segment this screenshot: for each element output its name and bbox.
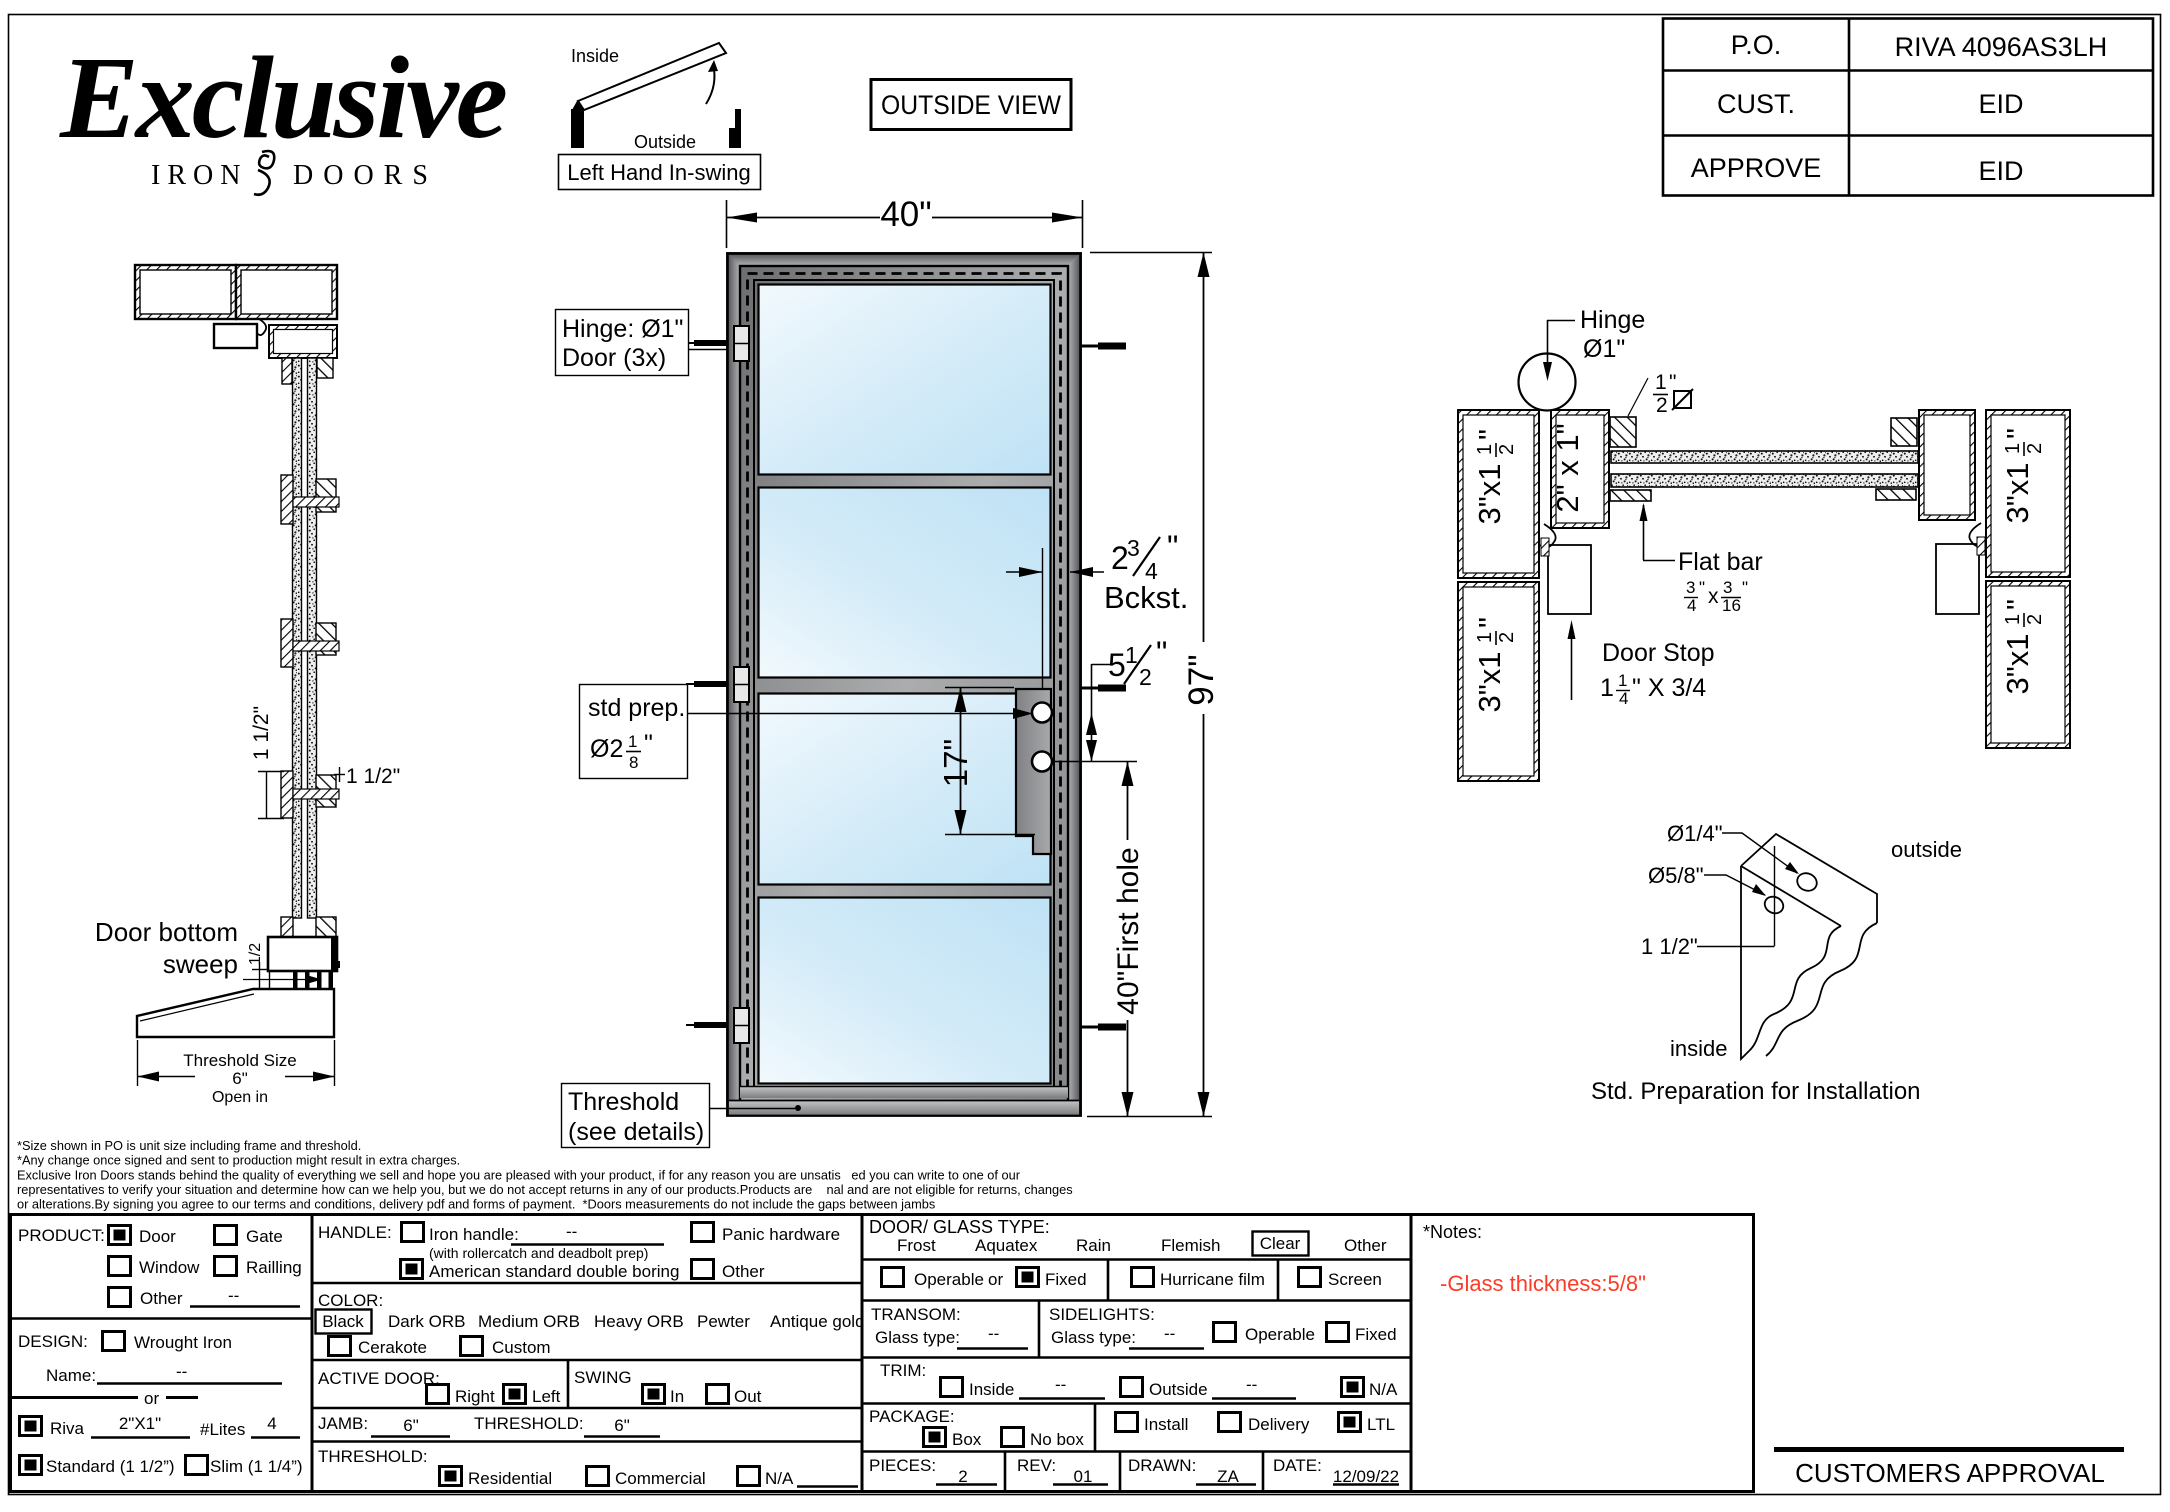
- svg-text:THRESHOLD:: THRESHOLD:: [318, 1447, 428, 1466]
- svg-text:": ": [1472, 429, 1507, 440]
- svg-text:Open in: Open in: [212, 1089, 268, 1106]
- svg-text:1: 1: [2002, 443, 2024, 454]
- svg-text:2: 2: [2024, 614, 2046, 625]
- svg-text:APPROVE: APPROVE: [1691, 153, 1822, 183]
- svg-text:Outside: Outside: [1149, 1380, 1208, 1399]
- svg-text:CUSTOMERS APPROVAL: CUSTOMERS APPROVAL: [1795, 1458, 2105, 1488]
- svg-text:or alterations.By signing you: or alterations.By signing you agree to o…: [17, 1197, 935, 1212]
- svg-text:" X 3/4: " X 3/4: [1632, 674, 1706, 702]
- svg-text:Heavy ORB: Heavy ORB: [594, 1312, 684, 1331]
- svg-text:3"x1: 3"x1: [1472, 464, 1507, 525]
- svg-text:SIDELIGHTS:: SIDELIGHTS:: [1049, 1305, 1155, 1324]
- svg-text:Inside: Inside: [571, 46, 619, 66]
- svg-text:3: 3: [1686, 578, 1695, 597]
- svg-text:Std. Preparation for Installat: Std. Preparation for Installation: [1591, 1078, 1921, 1105]
- svg-text:Exclusive: Exclusive: [59, 32, 506, 163]
- svg-text:American standard double borin: American standard double boring: [429, 1262, 679, 1281]
- svg-text:Left Hand In-swing: Left Hand In-swing: [567, 160, 750, 185]
- svg-text:1: 1: [628, 732, 637, 751]
- svg-text:": ": [1167, 529, 1178, 565]
- svg-text:Residential: Residential: [468, 1469, 552, 1488]
- svg-text:1 1/2": 1 1/2": [346, 765, 400, 788]
- svg-text:PRODUCT:: PRODUCT:: [18, 1226, 105, 1245]
- svg-text:--: --: [566, 1222, 577, 1241]
- svg-text:2" x 1": 2" x 1": [1550, 423, 1585, 512]
- svg-text:Antique gold: Antique gold: [770, 1312, 865, 1331]
- svg-text:TRIM:: TRIM:: [880, 1361, 926, 1380]
- svg-text:3"x1: 3"x1: [2000, 634, 2035, 695]
- svg-text:": ": [1699, 578, 1705, 597]
- svg-text:1: 1: [1474, 632, 1496, 643]
- svg-text:Wrought Iron: Wrought Iron: [134, 1333, 232, 1352]
- svg-text:Fixed: Fixed: [1355, 1325, 1397, 1344]
- svg-text:3: 3: [1127, 535, 1140, 561]
- svg-text:In: In: [670, 1387, 684, 1406]
- svg-text:DRAWN:: DRAWN:: [1128, 1456, 1196, 1475]
- svg-text:": ": [2000, 428, 2035, 439]
- svg-text:No box: No box: [1030, 1430, 1084, 1449]
- svg-text:2: 2: [2024, 443, 2046, 454]
- svg-text:Glass type:: Glass type:: [875, 1328, 960, 1347]
- svg-text:2: 2: [1139, 664, 1152, 690]
- svg-text:*Size shown in PO is unit size: *Size shown in PO is unit size including…: [17, 1138, 361, 1153]
- svg-text:Screen: Screen: [1328, 1270, 1382, 1289]
- svg-text:Iron handle:: Iron handle:: [429, 1225, 519, 1244]
- svg-text:Clear: Clear: [1260, 1234, 1301, 1253]
- svg-text:Bckst.: Bckst.: [1104, 580, 1188, 615]
- svg-text:Right: Right: [455, 1387, 495, 1406]
- svg-text:1: 1: [2002, 614, 2024, 625]
- svg-text:Threshold: Threshold: [568, 1088, 679, 1116]
- svg-text:Fixed: Fixed: [1045, 1270, 1087, 1289]
- svg-text:3: 3: [1723, 578, 1732, 597]
- svg-text:N/A: N/A: [765, 1469, 794, 1488]
- svg-text:DOORS: DOORS: [293, 160, 438, 191]
- svg-text:6": 6": [232, 1069, 248, 1088]
- svg-text:Slim (1 1/4”): Slim (1 1/4”): [210, 1457, 303, 1476]
- svg-text:2: 2: [1656, 394, 1668, 417]
- svg-text:x: x: [1708, 585, 1719, 608]
- svg-text:Flemish: Flemish: [1161, 1236, 1221, 1255]
- svg-text:EID: EID: [1978, 156, 2023, 186]
- svg-text:": ": [2000, 599, 2035, 610]
- svg-text:01: 01: [1074, 1467, 1093, 1486]
- svg-text:Operable: Operable: [914, 1270, 984, 1289]
- svg-text:Hurricane film: Hurricane film: [1160, 1270, 1265, 1289]
- svg-text:COLOR:: COLOR:: [318, 1291, 383, 1310]
- svg-text:Delivery: Delivery: [1248, 1415, 1310, 1434]
- svg-text:IRON: IRON: [151, 160, 247, 191]
- svg-text:Threshold Size: Threshold Size: [183, 1051, 296, 1070]
- svg-text:Box: Box: [952, 1430, 982, 1449]
- svg-text:TRANSOM:: TRANSOM:: [871, 1305, 961, 1324]
- svg-text:Panic hardware: Panic hardware: [722, 1225, 840, 1244]
- svg-text:--: --: [1055, 1375, 1066, 1394]
- svg-text:(with rollercatch and deadbolt: (with rollercatch and deadbolt prep): [429, 1245, 648, 1261]
- svg-text:Exclusive Iron Doors stands be: Exclusive Iron Doors stands behind the q…: [17, 1168, 1021, 1183]
- svg-text:CUST.: CUST.: [1717, 89, 1795, 119]
- svg-text:-Glass thickness:5/8": -Glass thickness:5/8": [1440, 1271, 1646, 1296]
- svg-text:Ø5/8": Ø5/8": [1648, 863, 1704, 888]
- svg-text:HANDLE:: HANDLE:: [318, 1223, 392, 1242]
- svg-text:Medium ORB: Medium ORB: [478, 1312, 580, 1331]
- svg-text:Cerakote: Cerakote: [358, 1338, 427, 1357]
- svg-text:ACTIVE DOOR:: ACTIVE DOOR:: [318, 1369, 440, 1388]
- svg-text:--: --: [1164, 1324, 1175, 1343]
- svg-text:2: 2: [958, 1467, 967, 1486]
- svg-text:or: or: [988, 1270, 1003, 1289]
- svg-text:Hinge: Ø1": Hinge: Ø1": [562, 315, 683, 343]
- svg-text:16: 16: [1722, 596, 1741, 615]
- svg-text:PACKAGE:: PACKAGE:: [869, 1407, 955, 1426]
- svg-text:ZA: ZA: [1217, 1467, 1239, 1486]
- svg-text:2: 2: [1496, 444, 1518, 455]
- svg-text:Operable: Operable: [1245, 1325, 1315, 1344]
- svg-text:3"x1: 3"x1: [2000, 463, 2035, 524]
- svg-text:EID: EID: [1978, 89, 2023, 119]
- svg-text:17": 17": [937, 739, 974, 787]
- svg-text:1: 1: [1655, 371, 1667, 394]
- svg-text:Commercial: Commercial: [615, 1469, 706, 1488]
- svg-text:--: --: [176, 1362, 187, 1381]
- svg-text:3"x1: 3"x1: [1472, 652, 1507, 713]
- svg-text:or: or: [144, 1389, 159, 1408]
- svg-text:1/2: 1/2: [247, 943, 264, 965]
- svg-text:1 1/2": 1 1/2": [250, 706, 273, 760]
- svg-text:1 1/2": 1 1/2": [1641, 934, 1698, 959]
- svg-text:97": 97": [1182, 654, 1221, 705]
- svg-text:Standard (1 1/2”): Standard (1 1/2”): [46, 1457, 175, 1476]
- svg-text:Hinge: Hinge: [1580, 306, 1645, 334]
- svg-text:Other: Other: [1344, 1236, 1387, 1255]
- svg-text:DESIGN:: DESIGN:: [18, 1332, 88, 1351]
- svg-text:inside: inside: [1670, 1036, 1727, 1061]
- svg-text:representatives to verify your: representatives to verify your situation…: [17, 1182, 1073, 1197]
- svg-text:--: --: [1246, 1375, 1257, 1394]
- svg-text:Name:: Name:: [46, 1366, 96, 1385]
- svg-text:40": 40": [880, 195, 931, 234]
- svg-text:Door Stop: Door Stop: [1602, 639, 1715, 667]
- svg-text:*Notes:: *Notes:: [1423, 1222, 1482, 1242]
- svg-text:#Lites: #Lites: [200, 1420, 245, 1439]
- svg-text:--: --: [228, 1286, 239, 1305]
- svg-text:std prep.: std prep.: [588, 694, 685, 722]
- svg-text:DATE:: DATE:: [1273, 1456, 1322, 1475]
- svg-text:": ": [1472, 617, 1507, 628]
- svg-text:THRESHOLD:: THRESHOLD:: [474, 1414, 584, 1433]
- svg-text:40"First hole: 40"First hole: [1112, 847, 1145, 1014]
- svg-text:1: 1: [1474, 444, 1496, 455]
- svg-text:Left: Left: [532, 1387, 561, 1406]
- svg-text:1: 1: [1600, 674, 1614, 702]
- svg-text:Other: Other: [722, 1262, 765, 1281]
- svg-text:Door bottom: Door bottom: [95, 917, 238, 947]
- svg-text:sweep: sweep: [163, 949, 238, 979]
- svg-text:Rain: Rain: [1076, 1236, 1111, 1255]
- svg-text:Gate: Gate: [246, 1227, 283, 1246]
- svg-text:Other: Other: [140, 1289, 183, 1308]
- svg-text:Pewter: Pewter: [697, 1312, 750, 1331]
- svg-text:4: 4: [1619, 689, 1628, 708]
- svg-text:Window: Window: [139, 1258, 200, 1277]
- svg-text:PIECES:: PIECES:: [869, 1456, 936, 1475]
- svg-text:Custom: Custom: [492, 1338, 551, 1357]
- svg-text:Ø1/4": Ø1/4": [1667, 821, 1723, 846]
- svg-text:SWING: SWING: [574, 1368, 632, 1387]
- svg-text:outside: outside: [1891, 837, 1962, 862]
- svg-text:Install: Install: [1144, 1415, 1188, 1434]
- svg-text:REV:: REV:: [1017, 1456, 1056, 1475]
- svg-text:*Any change once signed and se: *Any change once signed and sent to prod…: [17, 1153, 460, 1168]
- svg-text:Out: Out: [734, 1387, 762, 1406]
- svg-text:8: 8: [629, 753, 638, 772]
- svg-text:RIVA 4096AS3LH: RIVA 4096AS3LH: [1895, 32, 2108, 62]
- svg-text:Frost: Frost: [897, 1236, 936, 1255]
- svg-text:P.O.: P.O.: [1731, 30, 1782, 60]
- svg-text:2"X1": 2"X1": [119, 1414, 161, 1433]
- svg-text:Railling: Railling: [246, 1258, 302, 1277]
- svg-text:DOOR/ GLASS TYPE:: DOOR/ GLASS TYPE:: [869, 1217, 1050, 1237]
- svg-text:": ": [644, 730, 653, 758]
- svg-text:Inside: Inside: [969, 1380, 1014, 1399]
- svg-text:--: --: [988, 1324, 999, 1343]
- svg-text:Aquatex: Aquatex: [975, 1236, 1038, 1255]
- svg-text:Door: Door: [139, 1227, 176, 1246]
- svg-text:Door (3x): Door (3x): [562, 344, 666, 372]
- svg-text:Black: Black: [322, 1312, 364, 1331]
- svg-text:LTL: LTL: [1367, 1415, 1395, 1434]
- svg-text:Ø1": Ø1": [1583, 335, 1625, 363]
- svg-text:2: 2: [1496, 632, 1518, 643]
- svg-text:Outside: Outside: [634, 132, 696, 152]
- svg-text:6": 6": [403, 1416, 419, 1435]
- svg-text:Dark ORB: Dark ORB: [388, 1312, 465, 1331]
- svg-text:4: 4: [1687, 596, 1696, 615]
- svg-text:(see details): (see details): [568, 1118, 704, 1146]
- svg-text:1: 1: [1125, 642, 1138, 668]
- svg-text:Flat bar: Flat bar: [1678, 548, 1763, 576]
- svg-text:JAMB:: JAMB:: [318, 1414, 368, 1433]
- svg-text:N/A: N/A: [1369, 1380, 1398, 1399]
- svg-text:12/09/22: 12/09/22: [1333, 1467, 1399, 1486]
- svg-text:OUTSIDE VIEW: OUTSIDE VIEW: [881, 90, 1061, 120]
- svg-text:Riva: Riva: [50, 1419, 85, 1438]
- svg-text:5: 5: [1108, 647, 1126, 683]
- svg-text:": ": [1742, 578, 1748, 597]
- svg-text:6": 6": [614, 1416, 630, 1435]
- svg-text:Ø2: Ø2: [590, 735, 623, 763]
- svg-text:1: 1: [1618, 671, 1627, 690]
- svg-text:Glass type:: Glass type:: [1051, 1328, 1136, 1347]
- svg-text:": ": [1156, 635, 1167, 671]
- svg-text:4: 4: [267, 1414, 276, 1433]
